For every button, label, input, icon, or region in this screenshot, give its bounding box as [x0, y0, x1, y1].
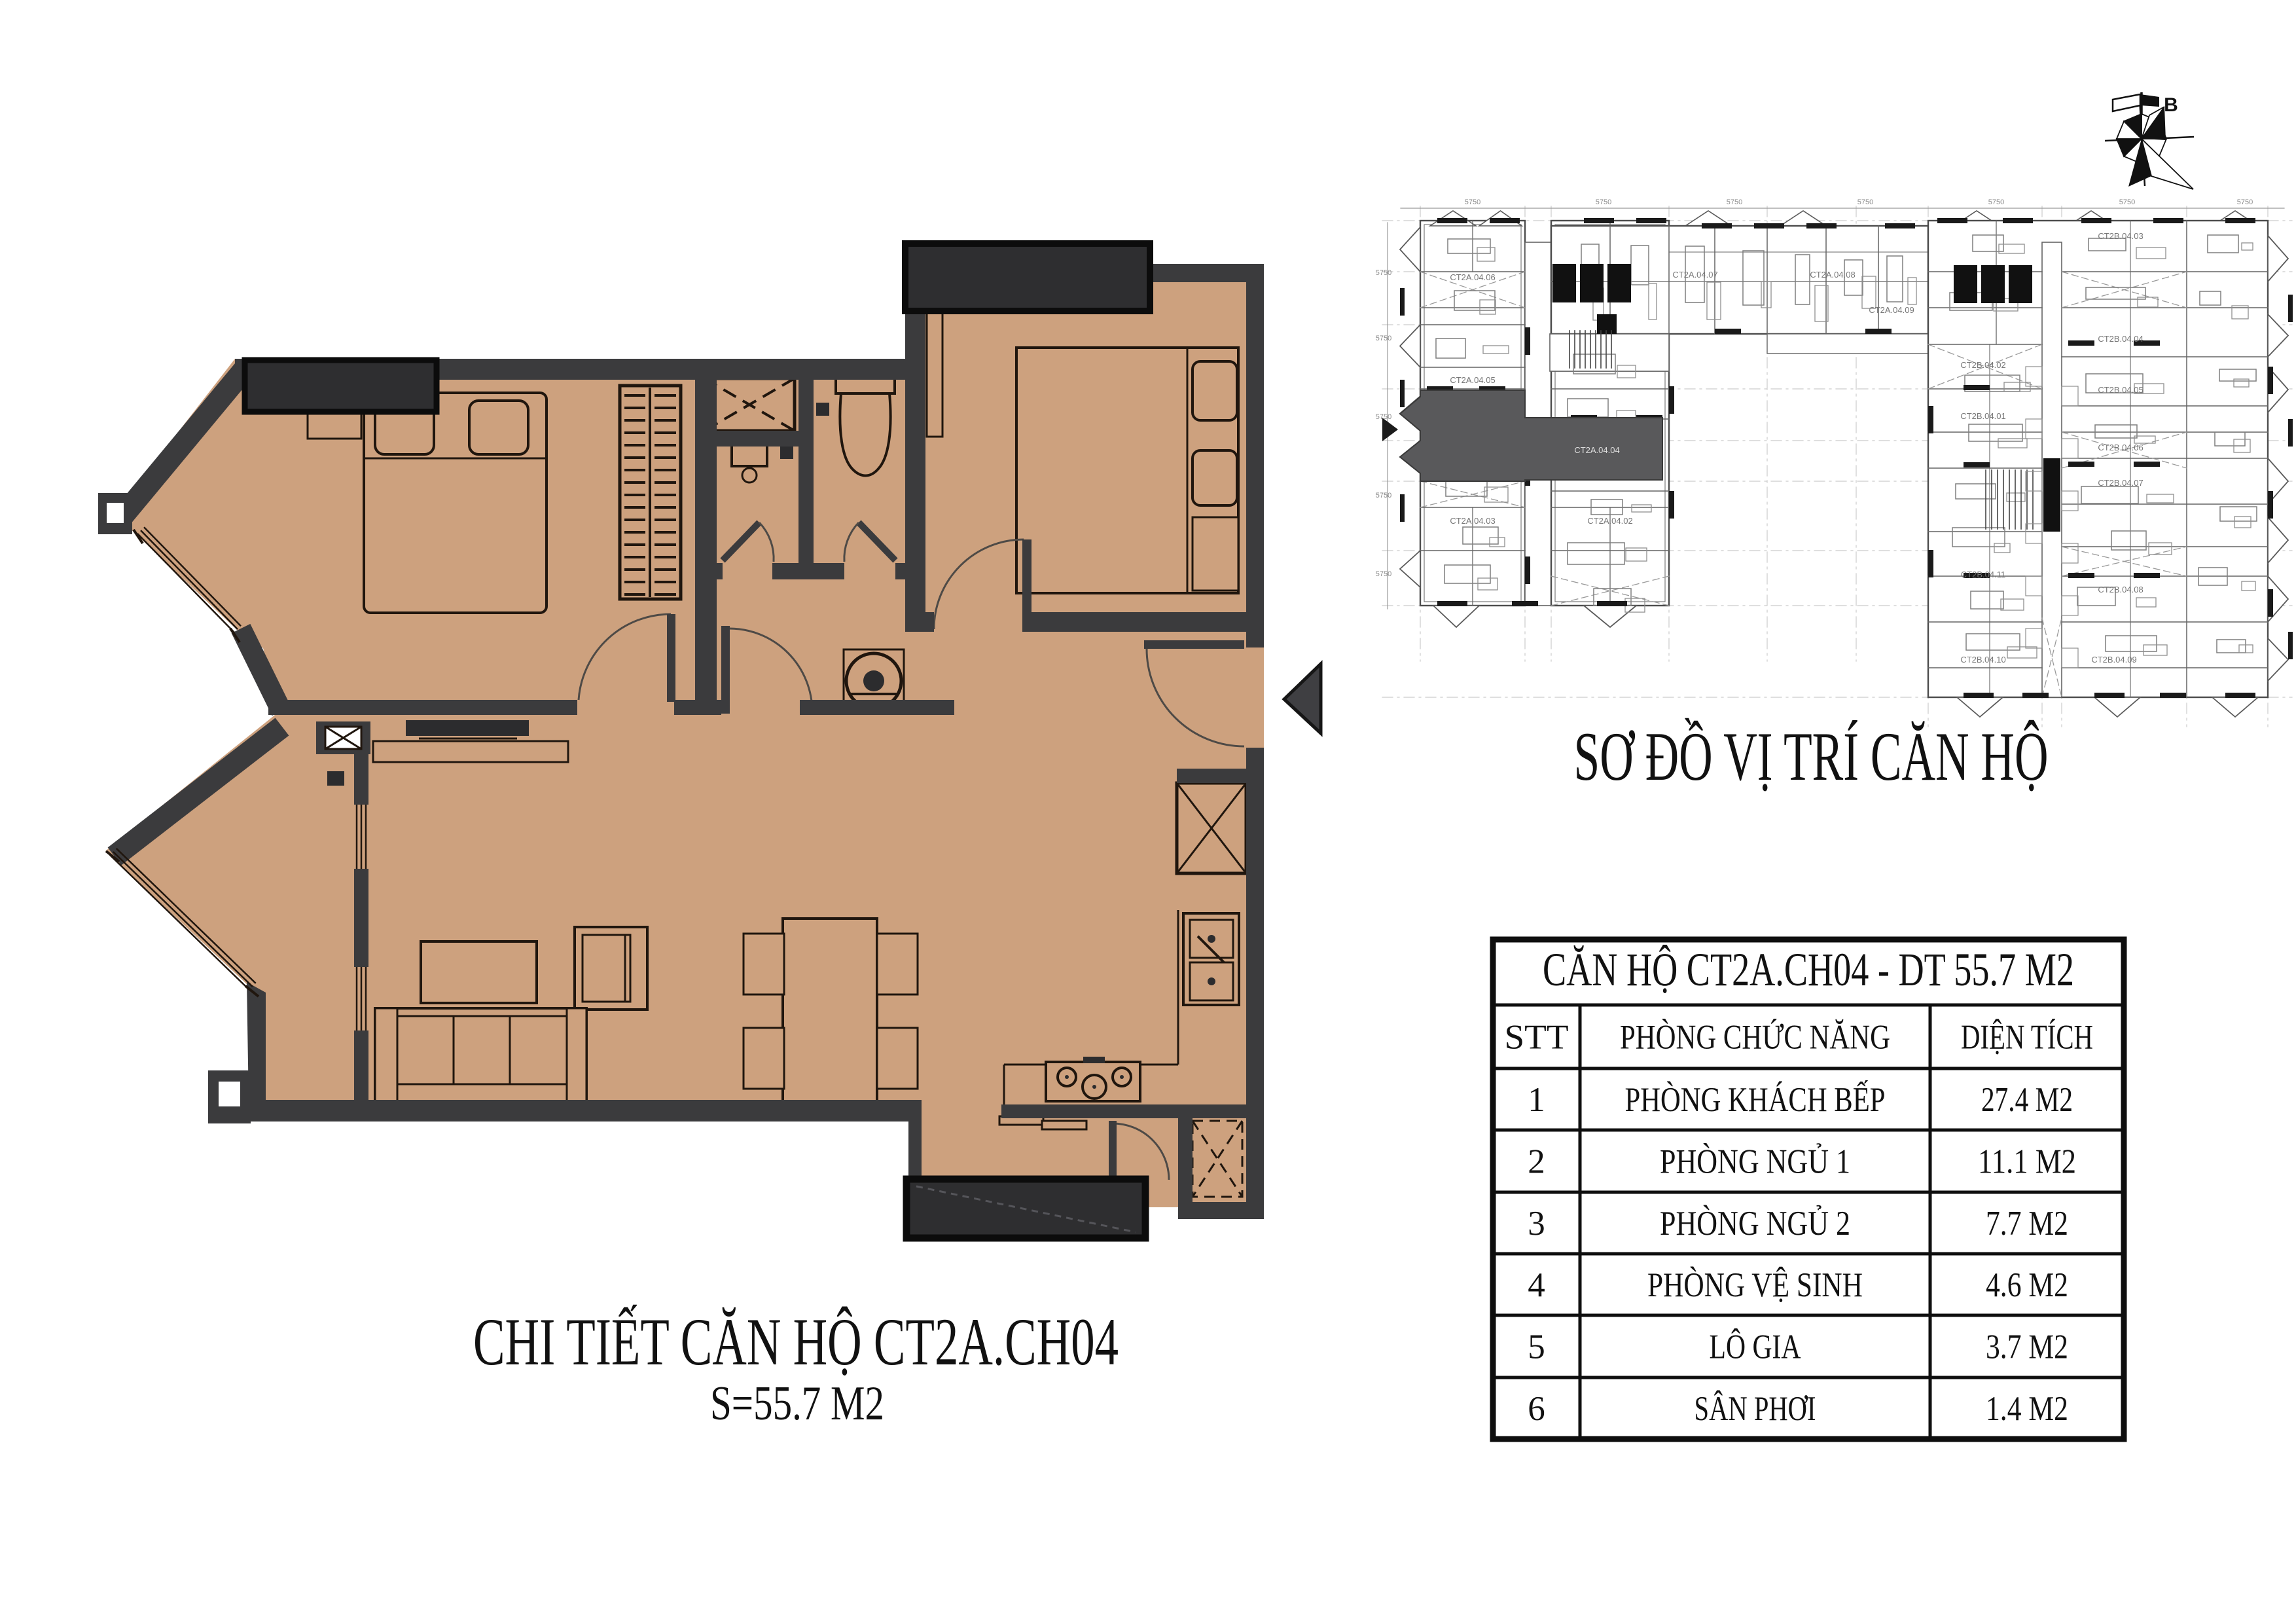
- svg-text:27.4 M2: 27.4 M2: [1981, 1081, 2073, 1119]
- svg-text:CĂN HỘ CT2A.CH04 - DT 55.7 M2: CĂN HỘ CT2A.CH04 - DT 55.7 M2: [1543, 943, 2074, 996]
- svg-text:5750: 5750: [1596, 198, 1611, 206]
- svg-text:B: B: [2164, 94, 2178, 116]
- svg-text:PHÒNG VỆ SINH: PHÒNG VỆ SINH: [1647, 1266, 1863, 1304]
- svg-text:3.7 M2: 3.7 M2: [1986, 1328, 2068, 1366]
- svg-text:CT2B.04.09: CT2B.04.09: [2091, 655, 2136, 665]
- svg-text:4: 4: [1528, 1266, 1545, 1304]
- svg-text:1.4 M2: 1.4 M2: [1986, 1390, 2068, 1428]
- svg-text:CT2B.04.02: CT2B.04.02: [1960, 360, 2005, 370]
- svg-text:7.7 M2: 7.7 M2: [1986, 1205, 2068, 1243]
- svg-text:5750: 5750: [1376, 269, 1391, 277]
- svg-text:5750: 5750: [2237, 198, 2253, 206]
- svg-text:11.1 M2: 11.1 M2: [1978, 1143, 2076, 1181]
- svg-text:5750: 5750: [1376, 570, 1391, 578]
- svg-text:CT2A.04.06: CT2A.04.06: [1450, 272, 1495, 282]
- svg-text:PHÒNG KHÁCH BẾP: PHÒNG KHÁCH BẾP: [1625, 1080, 1886, 1119]
- svg-text:CT2A.04.05: CT2A.04.05: [1450, 375, 1495, 385]
- svg-text:CT2B.04.06: CT2B.04.06: [2098, 443, 2143, 452]
- svg-text:CT2B.04.05: CT2B.04.05: [2098, 385, 2143, 395]
- svg-text:CT2B.04.03: CT2B.04.03: [2098, 231, 2143, 241]
- svg-text:PHÒNG CHỨC NĂNG: PHÒNG CHỨC NĂNG: [1620, 1019, 1890, 1057]
- svg-text:DIỆN TÍCH: DIỆN TÍCH: [1961, 1019, 2093, 1057]
- svg-text:CT2B.04.08: CT2B.04.08: [2098, 585, 2143, 594]
- svg-text:3: 3: [1528, 1205, 1545, 1243]
- svg-text:S=55.7 M2: S=55.7 M2: [710, 1377, 884, 1431]
- svg-text:CT2B.04.01: CT2B.04.01: [1960, 411, 2005, 421]
- svg-text:5750: 5750: [1376, 492, 1391, 500]
- svg-text:SÂN PHƠI: SÂN PHƠI: [1695, 1390, 1816, 1428]
- svg-text:4.6 M2: 4.6 M2: [1986, 1266, 2068, 1304]
- svg-text:CT2B.04.04: CT2B.04.04: [2098, 334, 2143, 344]
- svg-text:CT2B.04.10: CT2B.04.10: [1960, 655, 2005, 665]
- svg-text:CT2B.04.07: CT2B.04.07: [2098, 478, 2143, 488]
- svg-text:5: 5: [1528, 1328, 1545, 1366]
- svg-text:5750: 5750: [1727, 198, 1742, 206]
- svg-text:CT2A.04.02: CT2A.04.02: [1587, 516, 1632, 526]
- svg-text:6: 6: [1528, 1390, 1545, 1428]
- svg-text:5750: 5750: [2119, 198, 2135, 206]
- svg-text:PHÒNG NGỦ 2: PHÒNG NGỦ 2: [1660, 1205, 1850, 1243]
- svg-text:5750: 5750: [1465, 198, 1480, 206]
- svg-text:LÔ GIA: LÔ GIA: [1710, 1328, 1801, 1366]
- svg-text:2: 2: [1528, 1143, 1545, 1181]
- svg-text:5750: 5750: [1988, 198, 2004, 206]
- svg-text:CT2A.04.09: CT2A.04.09: [1869, 305, 1914, 315]
- svg-text:5750: 5750: [1857, 198, 1873, 206]
- svg-text:STT: STT: [1505, 1019, 1569, 1057]
- svg-text:CT2A.04.04: CT2A.04.04: [1574, 445, 1619, 455]
- svg-text:CT2A.04.08: CT2A.04.08: [1810, 270, 1855, 280]
- svg-text:CHI TIẾT CĂN HỘ CT2A.CH04: CHI TIẾT CĂN HỘ CT2A.CH04: [473, 1304, 1119, 1379]
- svg-text:5750: 5750: [1376, 335, 1391, 342]
- svg-text:CT2A.04.07: CT2A.04.07: [1672, 270, 1717, 280]
- svg-text:SƠ ĐỒ VỊ TRÍ CĂN HỘ: SƠ ĐỒ VỊ TRÍ CĂN HỘ: [1574, 718, 2049, 795]
- svg-text:1: 1: [1528, 1081, 1545, 1119]
- svg-text:CT2A.04.03: CT2A.04.03: [1450, 516, 1495, 526]
- svg-text:PHÒNG NGỦ 1: PHÒNG NGỦ 1: [1660, 1143, 1850, 1181]
- svg-text:CT2B.04.11: CT2B.04.11: [1961, 570, 2005, 579]
